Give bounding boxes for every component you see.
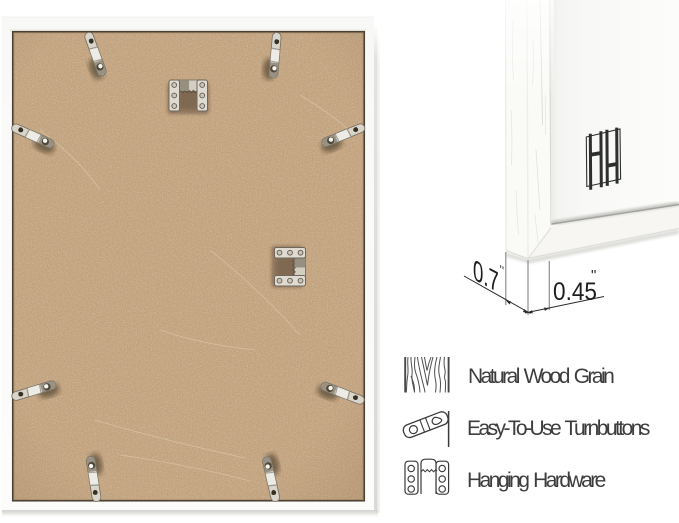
svg-text:0.7: 0.7 bbox=[473, 254, 499, 300]
svg-text:": " bbox=[591, 267, 596, 284]
svg-text:": " bbox=[500, 261, 505, 278]
